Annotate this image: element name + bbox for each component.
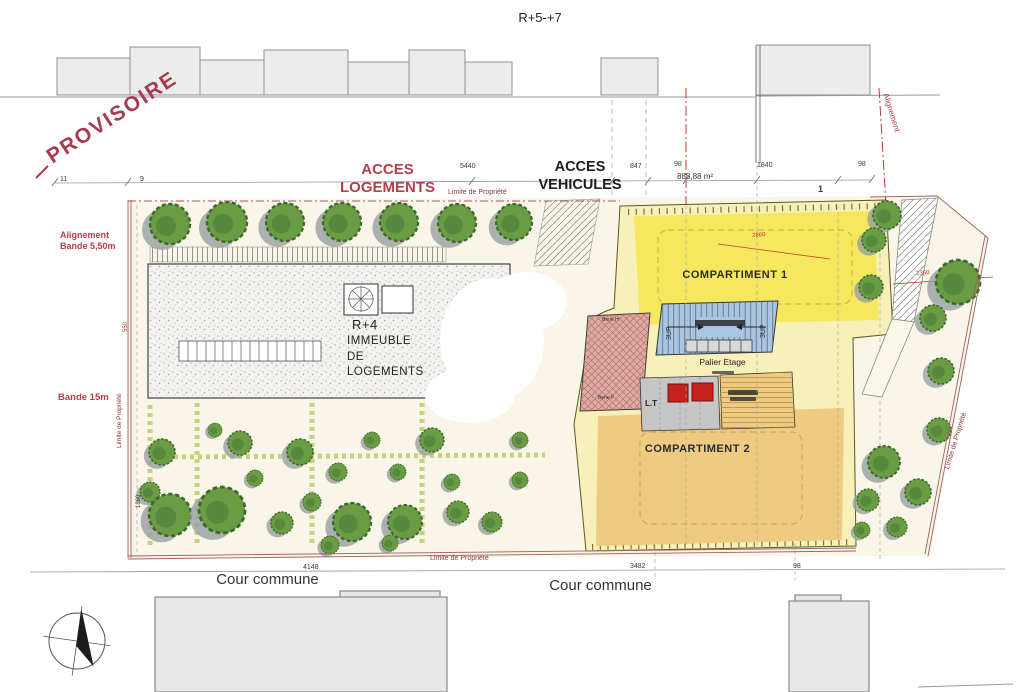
label-bene-f: Bene F	[598, 395, 614, 401]
buildings-bottom	[155, 591, 869, 692]
label-surface: 888,88 m²	[677, 172, 713, 182]
label-bene-h: Bene H	[602, 317, 619, 323]
elevator-1	[668, 384, 688, 402]
label-limite-top: Limite de Propriété	[448, 189, 507, 198]
label-cour-commune-right: Cour commune	[528, 577, 673, 595]
label-compartiment-1: COMPARTIMENT 1	[655, 269, 815, 282]
dim-98-c: 98	[793, 563, 801, 572]
alignment-axes	[686, 88, 886, 205]
dimension-line-bottom	[30, 569, 1005, 572]
dim-4148: 4148	[303, 564, 319, 573]
dim-847: 847	[630, 163, 642, 172]
dim-1: 1	[818, 184, 823, 195]
label-compartiment-2: COMPARTIMENT 2	[615, 443, 780, 456]
dim-9: 9	[140, 176, 144, 185]
label-limite-bottom: Limite de Propriété	[430, 555, 489, 564]
dim-5440: 5440	[460, 163, 476, 172]
illegible-label	[728, 390, 758, 395]
bike-room	[580, 313, 650, 411]
label-3up-right: 3UP	[760, 324, 769, 338]
red-mark	[36, 166, 48, 178]
dim-1860: 1860	[136, 495, 143, 508]
dim-2860: 2860	[752, 232, 766, 240]
label-bande-15m: Bande 15m	[58, 392, 109, 404]
bottom-right-line	[918, 684, 1013, 687]
illegible-label	[730, 397, 756, 401]
label-3up-left: 3UP	[666, 326, 675, 340]
label-limite-left: Limite de Propriété	[116, 393, 124, 448]
label-alignement-bande: Alignement Bande 5,50m	[60, 230, 116, 252]
dim-3482: 3482	[630, 563, 646, 572]
landing-strip	[720, 372, 795, 429]
plan-title: R+5-+7	[450, 10, 630, 26]
site-plan-canvas: R+5-+7 PROVISOIRE ACCES LOGEMENTS ACCES …	[0, 0, 1019, 692]
elevator-2	[692, 383, 713, 401]
dim-98-a: 98	[674, 161, 682, 170]
label-cour-commune-left: Cour commune	[195, 571, 340, 589]
dim-1840: 1840	[757, 162, 773, 171]
dimension-line-top	[52, 175, 875, 186]
label-acces-vehicules: ACCES VEHICULES	[525, 159, 635, 194]
dim-98-b: 98	[858, 161, 866, 170]
label-immeuble: IMMEUBLE DE LOGEMENTS	[347, 334, 424, 381]
label-lt: L.T	[645, 399, 657, 409]
dim-550: 550	[123, 322, 130, 332]
north-arrow-icon	[38, 602, 115, 681]
label-acces-logements: ACCES LOGEMENTS	[325, 161, 450, 198]
dim-1360: 1360	[916, 270, 930, 278]
entry-comb-strip	[150, 247, 446, 262]
illegible-dash	[712, 371, 734, 374]
label-r4: R+4	[352, 317, 378, 333]
dim-11: 11	[60, 176, 67, 185]
label-palier-etage: Palier Etage	[680, 357, 765, 367]
